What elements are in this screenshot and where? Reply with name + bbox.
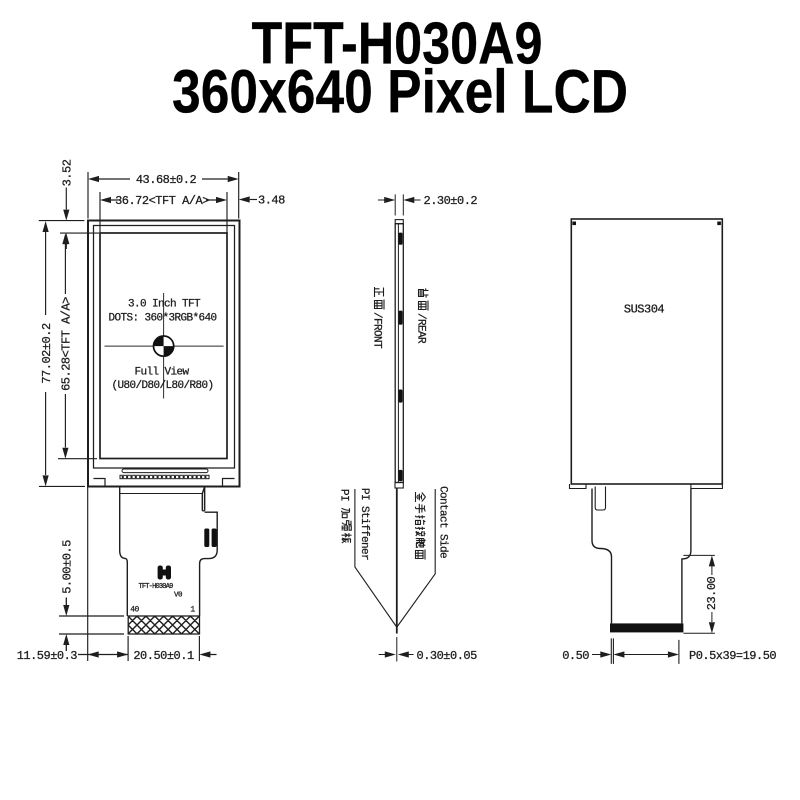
svg-text:SUS304: SUS304 xyxy=(624,303,665,317)
svg-text:3.0 Inch TFT: 3.0 Inch TFT xyxy=(128,299,201,311)
svg-text:Full View: Full View xyxy=(134,367,189,379)
svg-text:(U80/D80/L80/R80): (U80/D80/L80/R80) xyxy=(111,380,213,392)
svg-text:77.02±0.2: 77.02±0.2 xyxy=(40,323,54,384)
svg-text:/FRONT: /FRONT xyxy=(371,312,383,349)
svg-text:Contact Side: Contact Side xyxy=(437,486,449,558)
svg-text:/REAR: /REAR xyxy=(415,313,427,344)
svg-text:3.52: 3.52 xyxy=(60,159,74,186)
svg-text:P0.5x39=19.50: P0.5x39=19.50 xyxy=(689,649,776,663)
svg-text:43.68±0.2: 43.68±0.2 xyxy=(136,173,197,187)
svg-text:2.30±0.2: 2.30±0.2 xyxy=(424,194,478,208)
svg-text:23.00: 23.00 xyxy=(705,576,719,610)
svg-text:36.72<TFT A/A>: 36.72<TFT A/A> xyxy=(115,194,209,208)
svg-text:65.28<TFT A/A>: 65.28<TFT A/A> xyxy=(60,297,74,391)
svg-text:DOTS: 360*3RGB*640: DOTS: 360*3RGB*640 xyxy=(108,313,216,325)
svg-text:11.59±0.3: 11.59±0.3 xyxy=(17,649,78,663)
svg-text:360x640 Pixel LCD: 360x640 Pixel LCD xyxy=(172,58,628,126)
svg-text:0.50: 0.50 xyxy=(562,649,589,663)
svg-text:PI: PI xyxy=(338,489,350,501)
svg-text:20.50±0.1: 20.50±0.1 xyxy=(133,649,194,663)
svg-text:PI Stiffener: PI Stiffener xyxy=(358,488,370,560)
svg-text:40: 40 xyxy=(130,606,139,615)
svg-text:V0: V0 xyxy=(174,592,183,600)
svg-text:TFT-H030A9: TFT-H030A9 xyxy=(138,583,173,591)
svg-text:0.30±0.05: 0.30±0.05 xyxy=(417,649,478,663)
svg-text:1: 1 xyxy=(190,606,195,615)
svg-text:3.48: 3.48 xyxy=(258,194,285,208)
svg-text:5.00±0.5: 5.00±0.5 xyxy=(61,540,75,594)
